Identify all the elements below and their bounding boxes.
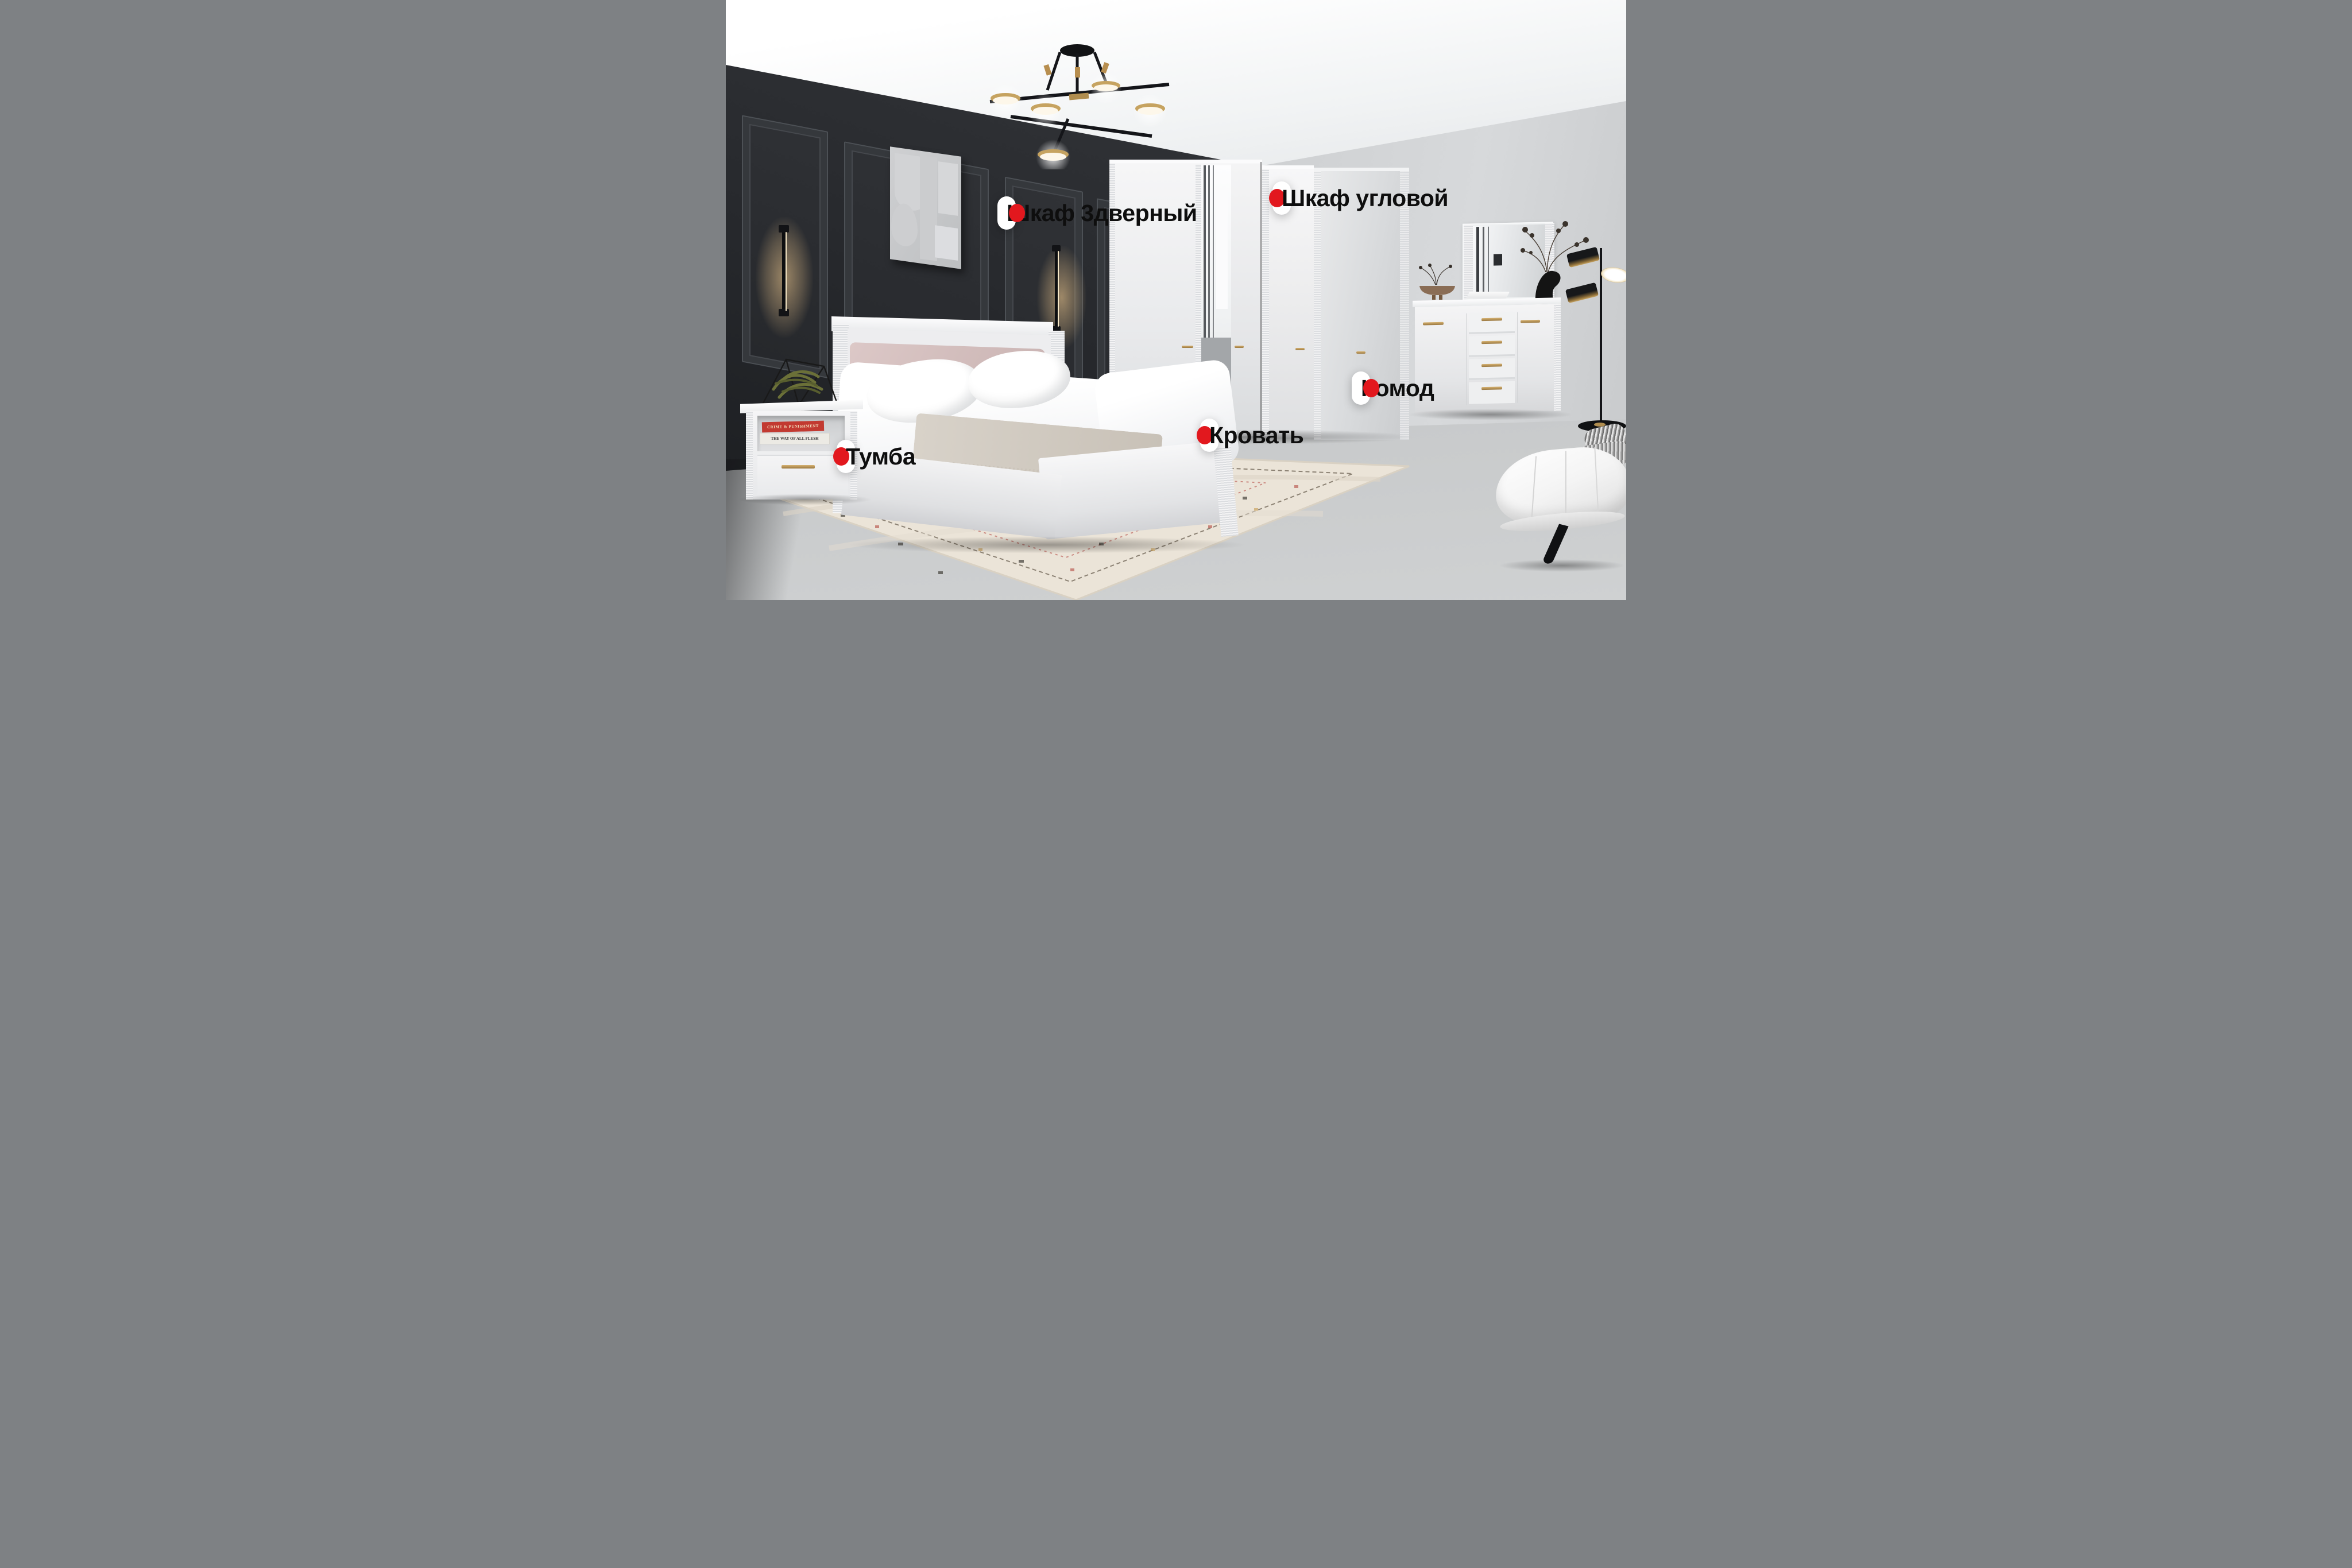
door-handle	[1295, 348, 1305, 350]
bed	[812, 299, 1254, 563]
sconce-cap	[779, 309, 789, 316]
bed-floor-shadow	[846, 536, 1248, 553]
nightstand-floor-shadow	[737, 494, 872, 505]
sconce-cap	[779, 225, 789, 233]
hotspot-label-nightstand[interactable]: Тумба	[837, 440, 855, 473]
dresser-floor-shadow	[1407, 409, 1573, 420]
open-book	[1466, 292, 1510, 299]
bed-foot-post	[1213, 446, 1238, 537]
hotspot-label-bed[interactable]: Кровать	[1200, 419, 1218, 452]
dresser	[1413, 297, 1561, 417]
chaise-lounge	[1495, 426, 1626, 598]
book-title: CRIME & PUNISHMENT	[767, 424, 819, 429]
label-text: Шкаф угловой	[1282, 187, 1448, 210]
hotspot-label-wardrobe-3door[interactable]: Шкаф 3дверный	[997, 196, 1016, 230]
dresser-handle	[1423, 322, 1444, 326]
book-spine-white: THE WAY OF ALL FLESH	[760, 433, 830, 444]
door-handle	[1356, 351, 1365, 354]
chaise-floor-shadow	[1499, 559, 1625, 572]
dresser-door-right	[1517, 311, 1554, 402]
sconce-light	[786, 232, 787, 311]
lamp-shade	[1566, 247, 1600, 268]
nightstand-shelf: CRIME & PUNISHMENT THE WAY OF ALL FLESH	[757, 416, 845, 451]
wire-decor-with-plant	[751, 349, 842, 409]
decor-bowl	[1415, 262, 1461, 302]
label-text: Тумба	[846, 445, 915, 469]
nightstand: CRIME & PUNISHMENT THE WAY OF ALL FLESH	[740, 349, 864, 510]
bedroom-furniture-photo: CRIME & PUNISHMENT THE WAY OF ALL FLESH …	[726, 0, 1626, 600]
lamp-shade-lit	[1600, 266, 1626, 285]
dresser-drawers	[1469, 312, 1515, 405]
label-text: Шкаф 3дверный	[1007, 202, 1197, 225]
floor-lamp	[1564, 243, 1626, 439]
ceiling-chandelier	[973, 14, 1179, 169]
hotspot-label-wardrobe-corner[interactable]: Шкаф угловой	[1272, 181, 1291, 215]
book-title: THE WAY OF ALL FLESH	[771, 436, 818, 441]
book-spine-red: CRIME & PUNISHMENT	[762, 421, 824, 433]
dresser-handle	[1521, 320, 1540, 323]
hotspot-marker-icon[interactable]	[1009, 204, 1025, 222]
nightstand-handle	[782, 465, 815, 469]
abstract-relief-art	[890, 146, 961, 269]
hotspot-label-dresser[interactable]: Комод	[1352, 371, 1370, 405]
hotspot-marker-icon[interactable]	[1363, 379, 1379, 397]
sconce-cap	[1052, 245, 1061, 251]
bed-footboard	[1038, 440, 1237, 539]
lamp-shade	[1565, 282, 1599, 303]
label-text: Кровать	[1209, 424, 1303, 447]
